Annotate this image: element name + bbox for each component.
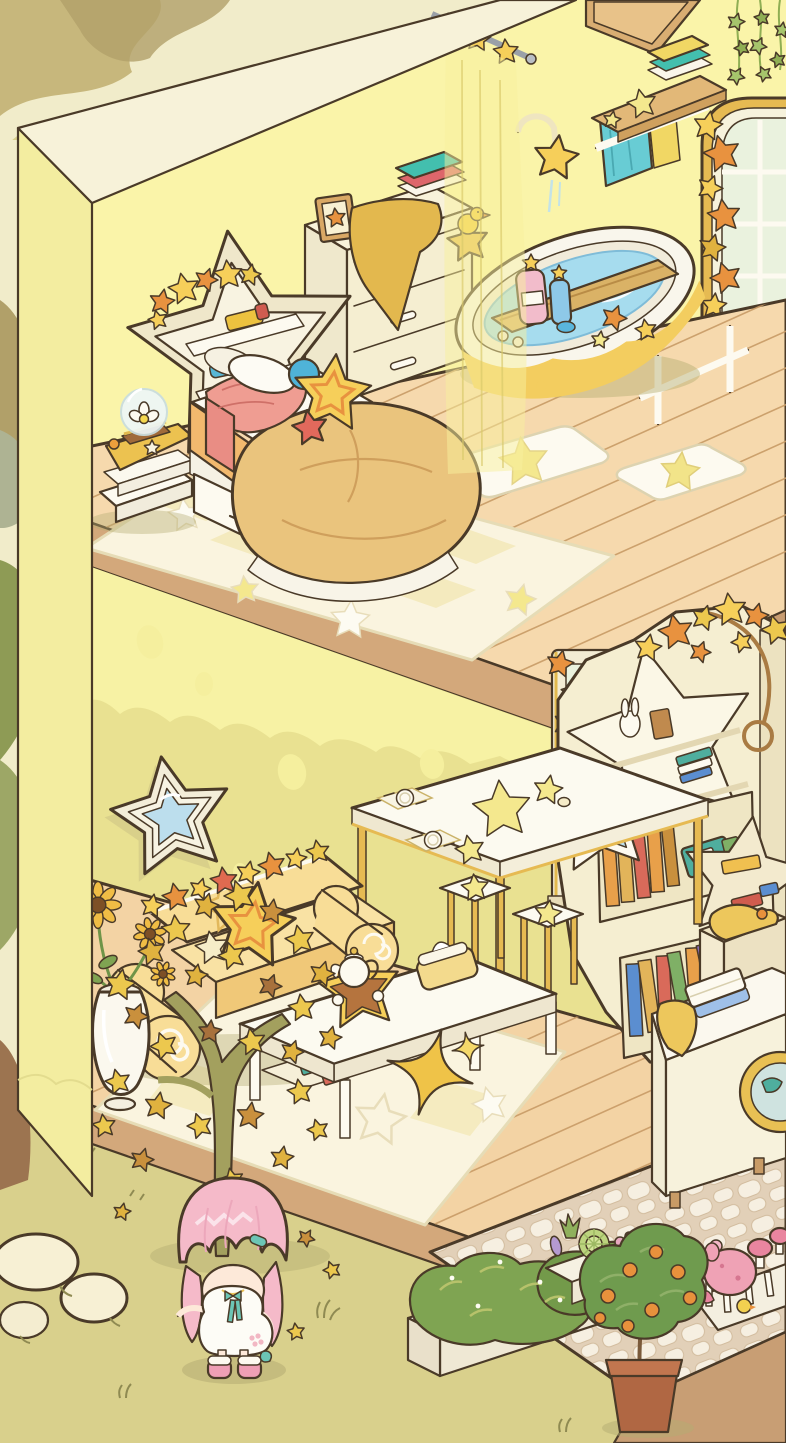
game-stage bbox=[0, 0, 786, 1443]
shower-curtain[interactable] bbox=[444, 34, 526, 474]
scene-canvas bbox=[0, 0, 786, 1443]
